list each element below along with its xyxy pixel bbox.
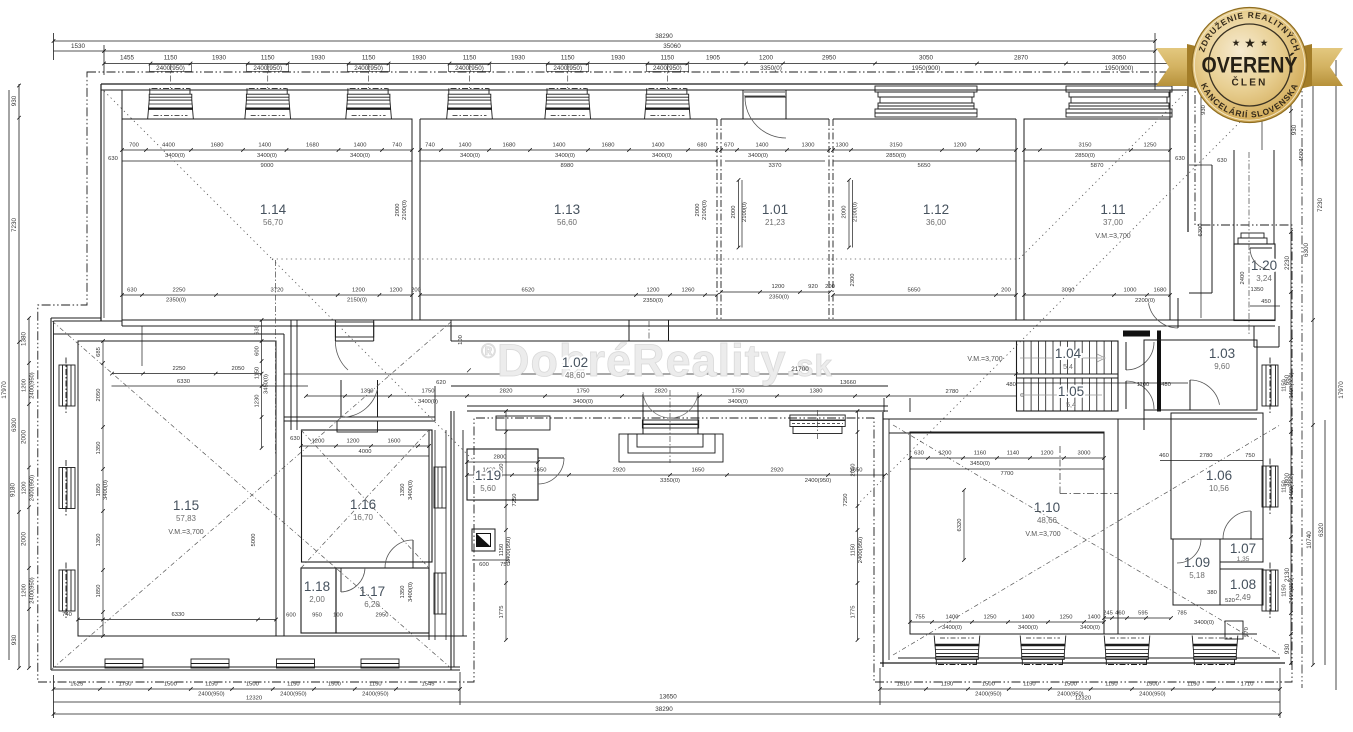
svg-text:1.04: 1.04 <box>1055 346 1082 361</box>
svg-text:1350: 1350 <box>400 586 406 599</box>
svg-text:1200: 1200 <box>22 584 28 597</box>
svg-text:1930: 1930 <box>412 55 427 62</box>
svg-text:4400: 4400 <box>162 143 175 149</box>
svg-text:3150: 3150 <box>1079 143 1092 149</box>
svg-text:2920: 2920 <box>613 468 626 474</box>
svg-text:1000: 1000 <box>1124 288 1137 294</box>
svg-text:1380: 1380 <box>810 389 823 395</box>
svg-text:17970: 17970 <box>1 381 8 399</box>
svg-text:38290: 38290 <box>655 33 673 40</box>
svg-text:740: 740 <box>425 143 435 149</box>
svg-text:1200: 1200 <box>390 288 403 294</box>
svg-text:1200: 1200 <box>22 379 28 392</box>
svg-text:1.12: 1.12 <box>923 202 949 217</box>
svg-text:930: 930 <box>1201 105 1207 115</box>
svg-text:1.06: 1.06 <box>1206 468 1232 483</box>
svg-text:1250: 1250 <box>984 615 997 621</box>
svg-text:3400(0): 3400(0) <box>728 399 748 405</box>
svg-text:3090: 3090 <box>1062 288 1075 294</box>
svg-text:930: 930 <box>11 95 18 106</box>
svg-text:5650: 5650 <box>908 288 921 294</box>
svg-text:630: 630 <box>1175 156 1185 162</box>
svg-text:630: 630 <box>127 288 137 294</box>
svg-text:1.11: 1.11 <box>1100 202 1125 217</box>
svg-text:3400(0): 3400(0) <box>942 625 962 631</box>
svg-text:1390: 1390 <box>361 389 374 395</box>
svg-text:2400(950): 2400(950) <box>1289 577 1295 603</box>
svg-text:5,4: 5,4 <box>1063 364 1073 371</box>
svg-text:5,4: 5,4 <box>1066 402 1076 409</box>
svg-text:1.05: 1.05 <box>1058 384 1084 399</box>
svg-text:3,24: 3,24 <box>1256 274 1272 283</box>
svg-text:35060: 35060 <box>663 43 681 50</box>
svg-text:1160: 1160 <box>974 451 986 457</box>
svg-text:DobréReality.sk: DobréReality.sk <box>497 335 833 386</box>
svg-text:2,49: 2,49 <box>1235 593 1251 602</box>
svg-text:1380: 1380 <box>21 332 28 347</box>
svg-text:200: 200 <box>411 288 421 294</box>
svg-text:1350: 1350 <box>96 534 102 547</box>
svg-text:9180: 9180 <box>10 483 17 498</box>
svg-text:1500: 1500 <box>328 682 341 688</box>
svg-text:7230: 7230 <box>1317 198 1324 213</box>
svg-text:520: 520 <box>1225 598 1235 604</box>
svg-text:930: 930 <box>1284 643 1291 654</box>
svg-text:2050: 2050 <box>96 389 102 402</box>
svg-text:2850(0): 2850(0) <box>886 153 906 159</box>
svg-text:600: 600 <box>286 613 296 619</box>
svg-text:3400(0): 3400(0) <box>555 153 575 159</box>
svg-text:2250: 2250 <box>173 366 186 372</box>
svg-text:1150: 1150 <box>661 55 675 62</box>
svg-text:ČLEN: ČLEN <box>1231 76 1267 89</box>
svg-text:595: 595 <box>1138 611 1148 617</box>
svg-text:5650: 5650 <box>918 163 931 169</box>
svg-text:3450(0): 3450(0) <box>970 461 990 467</box>
svg-text:1455: 1455 <box>120 55 135 62</box>
svg-text:1150: 1150 <box>851 544 857 556</box>
svg-text:1680: 1680 <box>211 143 224 149</box>
svg-text:12320: 12320 <box>246 696 262 702</box>
svg-text:2800: 2800 <box>494 455 507 461</box>
svg-text:1650: 1650 <box>692 468 705 474</box>
svg-text:2400(950): 2400(950) <box>30 475 36 501</box>
svg-text:460: 460 <box>1115 611 1125 617</box>
svg-text:1400: 1400 <box>258 143 271 149</box>
svg-text:3400(0): 3400(0) <box>1194 620 1214 626</box>
svg-text:1230: 1230 <box>255 395 261 408</box>
svg-text:930: 930 <box>1291 124 1298 135</box>
svg-text:1.02: 1.02 <box>562 355 588 370</box>
svg-text:1150: 1150 <box>1023 682 1035 688</box>
svg-text:3000: 3000 <box>1078 451 1091 457</box>
svg-text:17970: 17970 <box>1338 381 1345 399</box>
svg-text:1600: 1600 <box>388 439 401 445</box>
svg-text:1250: 1250 <box>1144 143 1157 149</box>
svg-text:1200: 1200 <box>1041 451 1054 457</box>
svg-text:1200: 1200 <box>647 288 660 294</box>
svg-text:1.13: 1.13 <box>554 202 580 217</box>
svg-text:1750: 1750 <box>119 682 132 688</box>
svg-text:630: 630 <box>1217 158 1227 164</box>
svg-text:1150: 1150 <box>261 55 275 62</box>
svg-text:1.10: 1.10 <box>1034 500 1060 515</box>
svg-text:1400: 1400 <box>756 143 769 149</box>
svg-text:V.M.=3,700: V.M.=3,700 <box>1095 233 1130 240</box>
svg-text:36,00: 36,00 <box>926 218 947 227</box>
svg-text:930: 930 <box>11 634 18 645</box>
svg-text:1150: 1150 <box>1282 584 1288 596</box>
svg-text:2780: 2780 <box>1200 453 1213 459</box>
svg-text:2350(0): 2350(0) <box>769 295 789 301</box>
svg-text:★: ★ <box>1260 38 1269 49</box>
svg-text:1350: 1350 <box>96 442 102 455</box>
svg-text:1250: 1250 <box>1060 615 1073 621</box>
svg-text:®: ® <box>481 341 496 363</box>
svg-text:10,56: 10,56 <box>1209 484 1230 493</box>
svg-text:2400: 2400 <box>1240 272 1246 285</box>
svg-text:21,23: 21,23 <box>765 218 786 227</box>
svg-text:100: 100 <box>333 613 343 619</box>
svg-text:2000: 2000 <box>395 204 401 217</box>
svg-text:460: 460 <box>1159 453 1169 459</box>
svg-text:1500: 1500 <box>982 682 995 688</box>
svg-text:3400(0): 3400(0) <box>350 153 370 159</box>
svg-text:2050: 2050 <box>232 366 245 372</box>
svg-text:2000: 2000 <box>842 206 848 219</box>
svg-text:2870: 2870 <box>1014 55 1029 62</box>
svg-text:1400: 1400 <box>1022 615 1035 621</box>
svg-text:785: 785 <box>1177 611 1187 617</box>
svg-text:450: 450 <box>1261 299 1271 305</box>
svg-text:3400(0): 3400(0) <box>1018 625 1038 631</box>
svg-text:1750: 1750 <box>732 389 745 395</box>
svg-text:750: 750 <box>500 562 510 568</box>
svg-text:1150: 1150 <box>362 55 376 62</box>
svg-text:2400(950): 2400(950) <box>1139 692 1165 698</box>
svg-text:1150: 1150 <box>1187 682 1199 688</box>
svg-text:1.16: 1.16 <box>350 497 376 512</box>
svg-text:2100(0): 2100(0) <box>853 202 859 222</box>
svg-text:3400(0): 3400(0) <box>418 399 438 405</box>
svg-text:2400(950): 2400(950) <box>805 478 831 484</box>
svg-text:★: ★ <box>1244 36 1256 51</box>
svg-text:6520: 6520 <box>522 288 535 294</box>
svg-text:1150: 1150 <box>205 682 217 688</box>
svg-text:OVERENÝ: OVERENÝ <box>1202 53 1298 78</box>
svg-text:56,60: 56,60 <box>557 218 578 227</box>
svg-text:2000: 2000 <box>731 206 737 219</box>
svg-text:1400: 1400 <box>459 143 472 149</box>
svg-text:3150: 3150 <box>890 143 903 149</box>
svg-text:1400: 1400 <box>354 143 367 149</box>
svg-text:2100(0): 2100(0) <box>742 202 748 222</box>
svg-text:2850(0): 2850(0) <box>1075 153 1095 159</box>
svg-text:1400: 1400 <box>1088 615 1101 621</box>
svg-text:5,60: 5,60 <box>480 484 496 493</box>
svg-text:1150: 1150 <box>463 55 477 62</box>
svg-text:1150: 1150 <box>1282 480 1288 492</box>
svg-text:1150: 1150 <box>369 682 381 688</box>
svg-text:1200: 1200 <box>759 55 774 62</box>
svg-text:1400: 1400 <box>553 143 566 149</box>
svg-text:1500: 1500 <box>1064 682 1077 688</box>
svg-text:2400(950): 2400(950) <box>30 577 36 603</box>
svg-text:620: 620 <box>436 380 446 386</box>
svg-text:3400(0): 3400(0) <box>257 153 277 159</box>
svg-text:1.01: 1.01 <box>762 202 788 217</box>
svg-text:57,83: 57,83 <box>176 514 197 523</box>
svg-text:2,00: 2,00 <box>309 595 325 604</box>
svg-text:16,70: 16,70 <box>353 513 374 522</box>
svg-text:680: 680 <box>697 143 707 149</box>
svg-text:2400(950): 2400(950) <box>975 692 1001 698</box>
svg-text:1930: 1930 <box>611 55 626 62</box>
svg-text:1625: 1625 <box>70 682 83 688</box>
svg-text:1200: 1200 <box>352 288 365 294</box>
svg-text:1775: 1775 <box>851 606 857 619</box>
svg-text:8980: 8980 <box>561 163 574 169</box>
svg-text:3400(0): 3400(0) <box>408 480 414 500</box>
svg-text:2400(950): 2400(950) <box>506 537 512 563</box>
svg-text:1.18: 1.18 <box>304 579 330 594</box>
svg-text:1150: 1150 <box>287 682 299 688</box>
svg-text:920: 920 <box>808 284 818 290</box>
svg-text:5870: 5870 <box>1091 163 1104 169</box>
svg-text:1.20: 1.20 <box>1251 258 1277 273</box>
svg-text:3400(0): 3400(0) <box>1080 625 1100 631</box>
svg-text:V.M.=3,700: V.M.=3,700 <box>967 356 1002 363</box>
svg-text:1905: 1905 <box>706 55 721 62</box>
svg-text:630: 630 <box>290 436 300 442</box>
svg-text:1150: 1150 <box>941 682 953 688</box>
svg-text:1930: 1930 <box>311 55 326 62</box>
svg-text:750: 750 <box>1245 453 1255 459</box>
svg-text:1680: 1680 <box>503 143 516 149</box>
svg-text:2400(950): 2400(950) <box>858 537 864 563</box>
svg-text:2820: 2820 <box>500 389 513 395</box>
svg-text:48,66: 48,66 <box>1037 516 1058 525</box>
svg-text:3400(0): 3400(0) <box>103 480 109 500</box>
svg-text:10740: 10740 <box>1306 531 1313 549</box>
svg-text:1,35: 1,35 <box>1237 556 1250 563</box>
svg-text:1.09: 1.09 <box>1184 555 1210 570</box>
svg-text:2300: 2300 <box>850 274 856 287</box>
svg-text:2250: 2250 <box>173 288 186 294</box>
svg-text:1300: 1300 <box>802 143 815 149</box>
svg-text:V.M.=3,700: V.M.=3,700 <box>168 529 203 536</box>
svg-text:48,60: 48,60 <box>565 371 586 380</box>
svg-text:700: 700 <box>129 143 139 149</box>
svg-text:1680: 1680 <box>306 143 319 149</box>
svg-text:V.M.=3,700: V.M.=3,700 <box>1025 531 1060 538</box>
svg-text:2000: 2000 <box>695 204 701 217</box>
svg-text:3370: 3370 <box>769 163 782 169</box>
svg-text:1400: 1400 <box>652 143 665 149</box>
svg-text:2230: 2230 <box>1284 256 1291 271</box>
svg-text:600: 600 <box>479 562 489 568</box>
svg-text:630: 630 <box>255 325 261 335</box>
svg-text:1.03: 1.03 <box>1209 346 1235 361</box>
svg-text:1545: 1545 <box>422 682 435 688</box>
svg-text:740: 740 <box>62 612 72 618</box>
svg-text:200: 200 <box>1001 288 1011 294</box>
svg-text:100: 100 <box>458 335 464 345</box>
svg-text:1850: 1850 <box>96 484 102 497</box>
svg-text:3350(0): 3350(0) <box>760 65 782 72</box>
svg-text:3720: 3720 <box>271 288 284 294</box>
svg-text:1150: 1150 <box>499 544 505 556</box>
svg-text:1950(900): 1950(900) <box>912 65 941 72</box>
svg-text:380: 380 <box>1207 590 1217 596</box>
svg-text:3400(0): 3400(0) <box>652 153 672 159</box>
svg-text:2400(950): 2400(950) <box>1289 372 1295 398</box>
svg-text:1350: 1350 <box>400 484 406 497</box>
svg-text:2100(0): 2100(0) <box>702 200 708 220</box>
svg-text:2400(950): 2400(950) <box>362 692 388 698</box>
svg-text:245: 245 <box>1103 611 1113 617</box>
svg-text:1500: 1500 <box>1146 682 1159 688</box>
svg-text:1500: 1500 <box>164 682 177 688</box>
svg-text:★: ★ <box>1232 38 1241 49</box>
svg-text:2920: 2920 <box>771 468 784 474</box>
svg-text:3400(0): 3400(0) <box>573 399 593 405</box>
svg-text:6300: 6300 <box>11 418 18 433</box>
svg-text:5,18: 5,18 <box>1189 571 1205 580</box>
svg-text:4000: 4000 <box>359 449 372 455</box>
svg-text:2950: 2950 <box>822 55 837 62</box>
svg-text:600: 600 <box>255 346 261 356</box>
svg-text:13660: 13660 <box>840 380 856 386</box>
svg-text:1750: 1750 <box>577 389 590 395</box>
svg-text:1850: 1850 <box>96 585 102 598</box>
svg-text:6330: 6330 <box>172 612 185 618</box>
svg-text:2400(950): 2400(950) <box>198 692 224 698</box>
svg-text:2950: 2950 <box>376 613 389 619</box>
svg-text:1510: 1510 <box>897 682 910 688</box>
svg-text:630: 630 <box>914 451 924 457</box>
svg-text:6330: 6330 <box>177 379 190 385</box>
svg-text:740: 740 <box>392 143 402 149</box>
svg-text:1710: 1710 <box>1241 682 1254 688</box>
svg-text:1150: 1150 <box>1105 682 1117 688</box>
svg-text:2400(950): 2400(950) <box>280 692 306 698</box>
svg-text:6320: 6320 <box>957 519 963 532</box>
svg-text:7230: 7230 <box>11 218 18 233</box>
svg-text:7250: 7250 <box>843 494 849 507</box>
svg-text:1.08: 1.08 <box>1230 577 1256 592</box>
svg-text:2400(950): 2400(950) <box>1289 473 1295 499</box>
svg-text:1200: 1200 <box>347 439 360 445</box>
svg-text:1.07: 1.07 <box>1230 541 1256 556</box>
svg-text:3400(0): 3400(0) <box>748 153 768 159</box>
svg-text:1150: 1150 <box>561 55 575 62</box>
svg-text:6300: 6300 <box>1303 243 1310 258</box>
svg-text:5000: 5000 <box>251 534 257 547</box>
svg-text:3050: 3050 <box>1112 55 1127 62</box>
svg-text:1750: 1750 <box>422 389 435 395</box>
svg-text:7700: 7700 <box>1001 471 1014 477</box>
svg-text:21700: 21700 <box>791 366 809 373</box>
svg-text:1680: 1680 <box>602 143 615 149</box>
svg-text:2780: 2780 <box>946 389 959 395</box>
svg-text:1930: 1930 <box>511 55 526 62</box>
svg-text:2000: 2000 <box>21 430 28 445</box>
svg-text:2050: 2050 <box>851 464 857 477</box>
svg-text:685: 685 <box>96 347 102 357</box>
svg-text:9000: 9000 <box>261 163 274 169</box>
svg-text:1930: 1930 <box>212 55 227 62</box>
svg-text:9,60: 9,60 <box>1214 362 1230 371</box>
svg-text:950: 950 <box>312 613 322 619</box>
svg-text:12320: 12320 <box>1075 696 1091 702</box>
svg-text:13650: 13650 <box>659 694 677 701</box>
svg-text:1680: 1680 <box>1154 288 1167 294</box>
svg-text:1650: 1650 <box>534 468 547 474</box>
svg-text:1260: 1260 <box>682 288 695 294</box>
svg-text:1.15: 1.15 <box>173 498 199 513</box>
svg-text:1.14: 1.14 <box>260 202 287 217</box>
svg-text:1950(900): 1950(900) <box>1105 65 1134 72</box>
svg-text:3350(0): 3350(0) <box>660 478 680 484</box>
svg-text:3050: 3050 <box>919 55 934 62</box>
svg-text:480: 480 <box>1006 382 1016 388</box>
svg-text:1350: 1350 <box>1251 287 1264 293</box>
svg-text:3400(0): 3400(0) <box>165 153 185 159</box>
svg-text:1150: 1150 <box>255 367 261 379</box>
svg-text:1150: 1150 <box>1282 379 1288 391</box>
svg-text:1200: 1200 <box>954 143 967 149</box>
svg-text:1200: 1200 <box>772 284 785 290</box>
svg-text:2000: 2000 <box>21 532 28 547</box>
svg-text:2350(0): 2350(0) <box>643 298 663 304</box>
svg-text:38290: 38290 <box>655 706 673 713</box>
svg-text:2150(0): 2150(0) <box>347 298 367 304</box>
svg-text:670: 670 <box>724 143 734 149</box>
svg-text:630: 630 <box>108 156 118 162</box>
svg-text:2200(0): 2200(0) <box>1135 298 1155 304</box>
svg-text:2820: 2820 <box>655 389 668 395</box>
svg-text:1530: 1530 <box>71 43 86 50</box>
svg-text:755: 755 <box>915 615 925 621</box>
svg-text:1300: 1300 <box>836 143 849 149</box>
svg-text:1200: 1200 <box>22 482 28 495</box>
svg-text:3400(0): 3400(0) <box>460 153 480 159</box>
svg-text:3400(0): 3400(0) <box>408 582 414 602</box>
svg-text:37,00: 37,00 <box>1103 218 1124 227</box>
svg-text:1150: 1150 <box>164 55 178 62</box>
svg-text:1140: 1140 <box>1007 451 1019 457</box>
svg-text:1500: 1500 <box>246 682 259 688</box>
svg-text:2350(0): 2350(0) <box>166 298 186 304</box>
svg-text:4500: 4500 <box>1299 149 1305 162</box>
svg-text:2100(0): 2100(0) <box>402 200 408 220</box>
svg-text:6320: 6320 <box>1318 523 1325 538</box>
svg-text:56,70: 56,70 <box>263 218 284 227</box>
svg-text:1.19: 1.19 <box>475 468 501 483</box>
svg-text:1775: 1775 <box>499 606 505 619</box>
svg-text:2400(950): 2400(950) <box>30 372 36 398</box>
svg-text:3450(0): 3450(0) <box>264 374 270 394</box>
